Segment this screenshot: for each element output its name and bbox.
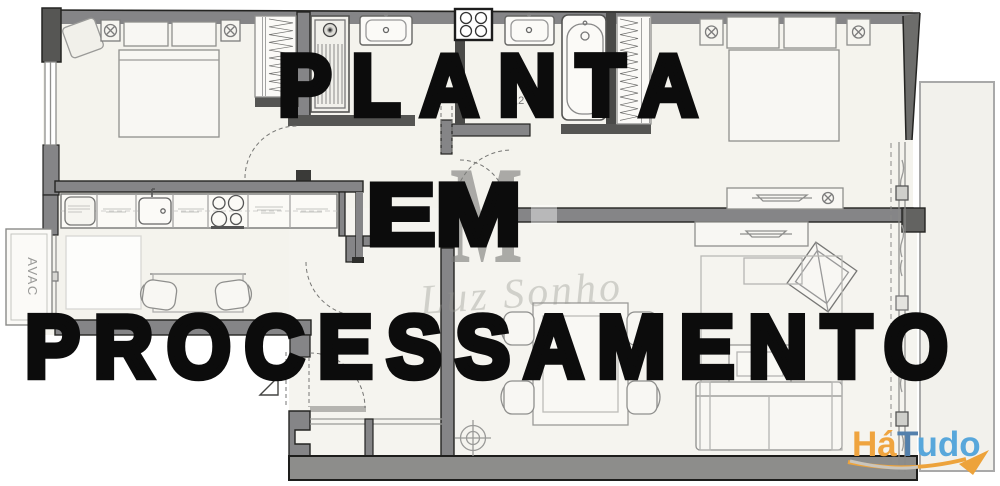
svg-text:EM: EM — [367, 167, 522, 264]
svg-text:Há: Há — [852, 425, 897, 464]
svg-text:udo: udo — [917, 425, 981, 464]
svg-text:T: T — [897, 425, 918, 464]
svg-text:AVAC: AVAC — [25, 257, 40, 296]
